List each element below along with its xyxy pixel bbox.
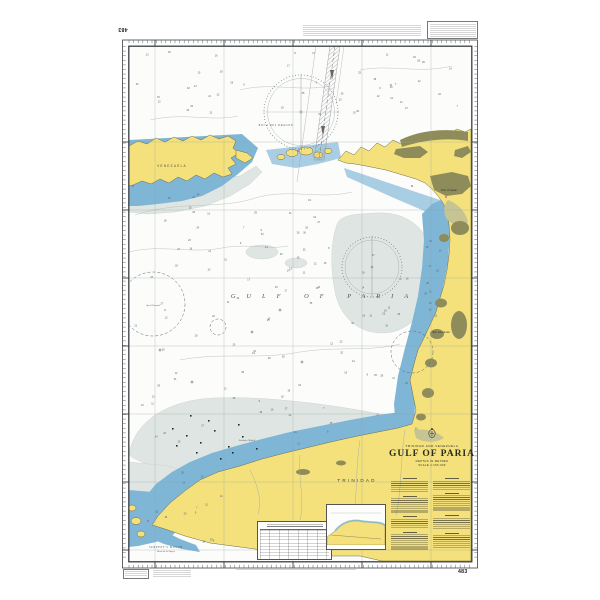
light-symbol (411, 185, 413, 187)
nautical-chart-sheet: 483 (0, 0, 600, 600)
bottom-center-note (236, 569, 356, 571)
map-label-serpent-s-mouth: SERPENT'S MOUTH (149, 546, 183, 549)
chart-notes-col1 (391, 478, 428, 550)
light-symbol (297, 150, 299, 152)
platform-symbol (214, 430, 216, 432)
map-label-trinidad: TRINIDAD (337, 478, 376, 483)
tidal-table (257, 521, 332, 560)
light-symbol (132, 185, 134, 187)
platform-symbol (220, 458, 222, 460)
inset-plan (326, 504, 386, 550)
title-block: TRINIDAD AND VENEZUELA GULF OF PARIA DEP… (388, 426, 476, 467)
map-label-gulf-of-paria: GULF OF PARIA (231, 293, 419, 300)
platform-symbol (256, 448, 258, 450)
royal-crest-icon (427, 427, 437, 439)
tidal-table-grid (260, 529, 329, 560)
platform-symbol (200, 442, 202, 444)
light-symbol (445, 196, 447, 198)
title-scale: SCALE 1:150,000 (388, 464, 476, 467)
tidal-table-caption (267, 524, 323, 527)
platform-symbol (186, 435, 188, 437)
platform-symbol (172, 428, 174, 430)
map-label-boca-de-la-sierpe: Boca de la Sierpe (157, 550, 176, 553)
inset-map (327, 505, 385, 545)
title-nations: TRINIDAD AND VENEZUELA (388, 444, 476, 448)
chart-notes-col2 (433, 478, 470, 548)
platform-symbol (232, 452, 234, 454)
platform-symbol (176, 445, 178, 447)
platform-symbol (238, 424, 240, 426)
bottom-left-note-box (123, 569, 149, 579)
chart-number-bottom-right: 483 (458, 569, 468, 575)
map-label-venezuela: VENEZUELA (157, 164, 187, 168)
map-label-spoil-ground: Spoil Ground (146, 304, 160, 307)
platform-symbol (196, 452, 198, 454)
map-label-soldado-oilfield: Soldado Oilfield (239, 439, 256, 442)
light-symbol (147, 520, 149, 522)
title-depths: DEPTHS IN METRES (388, 460, 476, 463)
platform-symbol (228, 446, 230, 448)
platform-symbol (190, 415, 192, 417)
chart-map: 9121822731251436201127163382419291335211… (0, 0, 600, 600)
platform-symbol (242, 436, 244, 438)
map-label-boca-del-dragon: BOCA DEL DRAGON (259, 124, 294, 127)
map-label-san-fernando: San Fernando (432, 330, 450, 334)
chart-title: GULF OF PARIA (388, 449, 476, 459)
bottom-left-note (153, 570, 191, 577)
map-label-port-of-spain: Port of Spain (441, 188, 458, 192)
platform-symbol (208, 420, 210, 422)
